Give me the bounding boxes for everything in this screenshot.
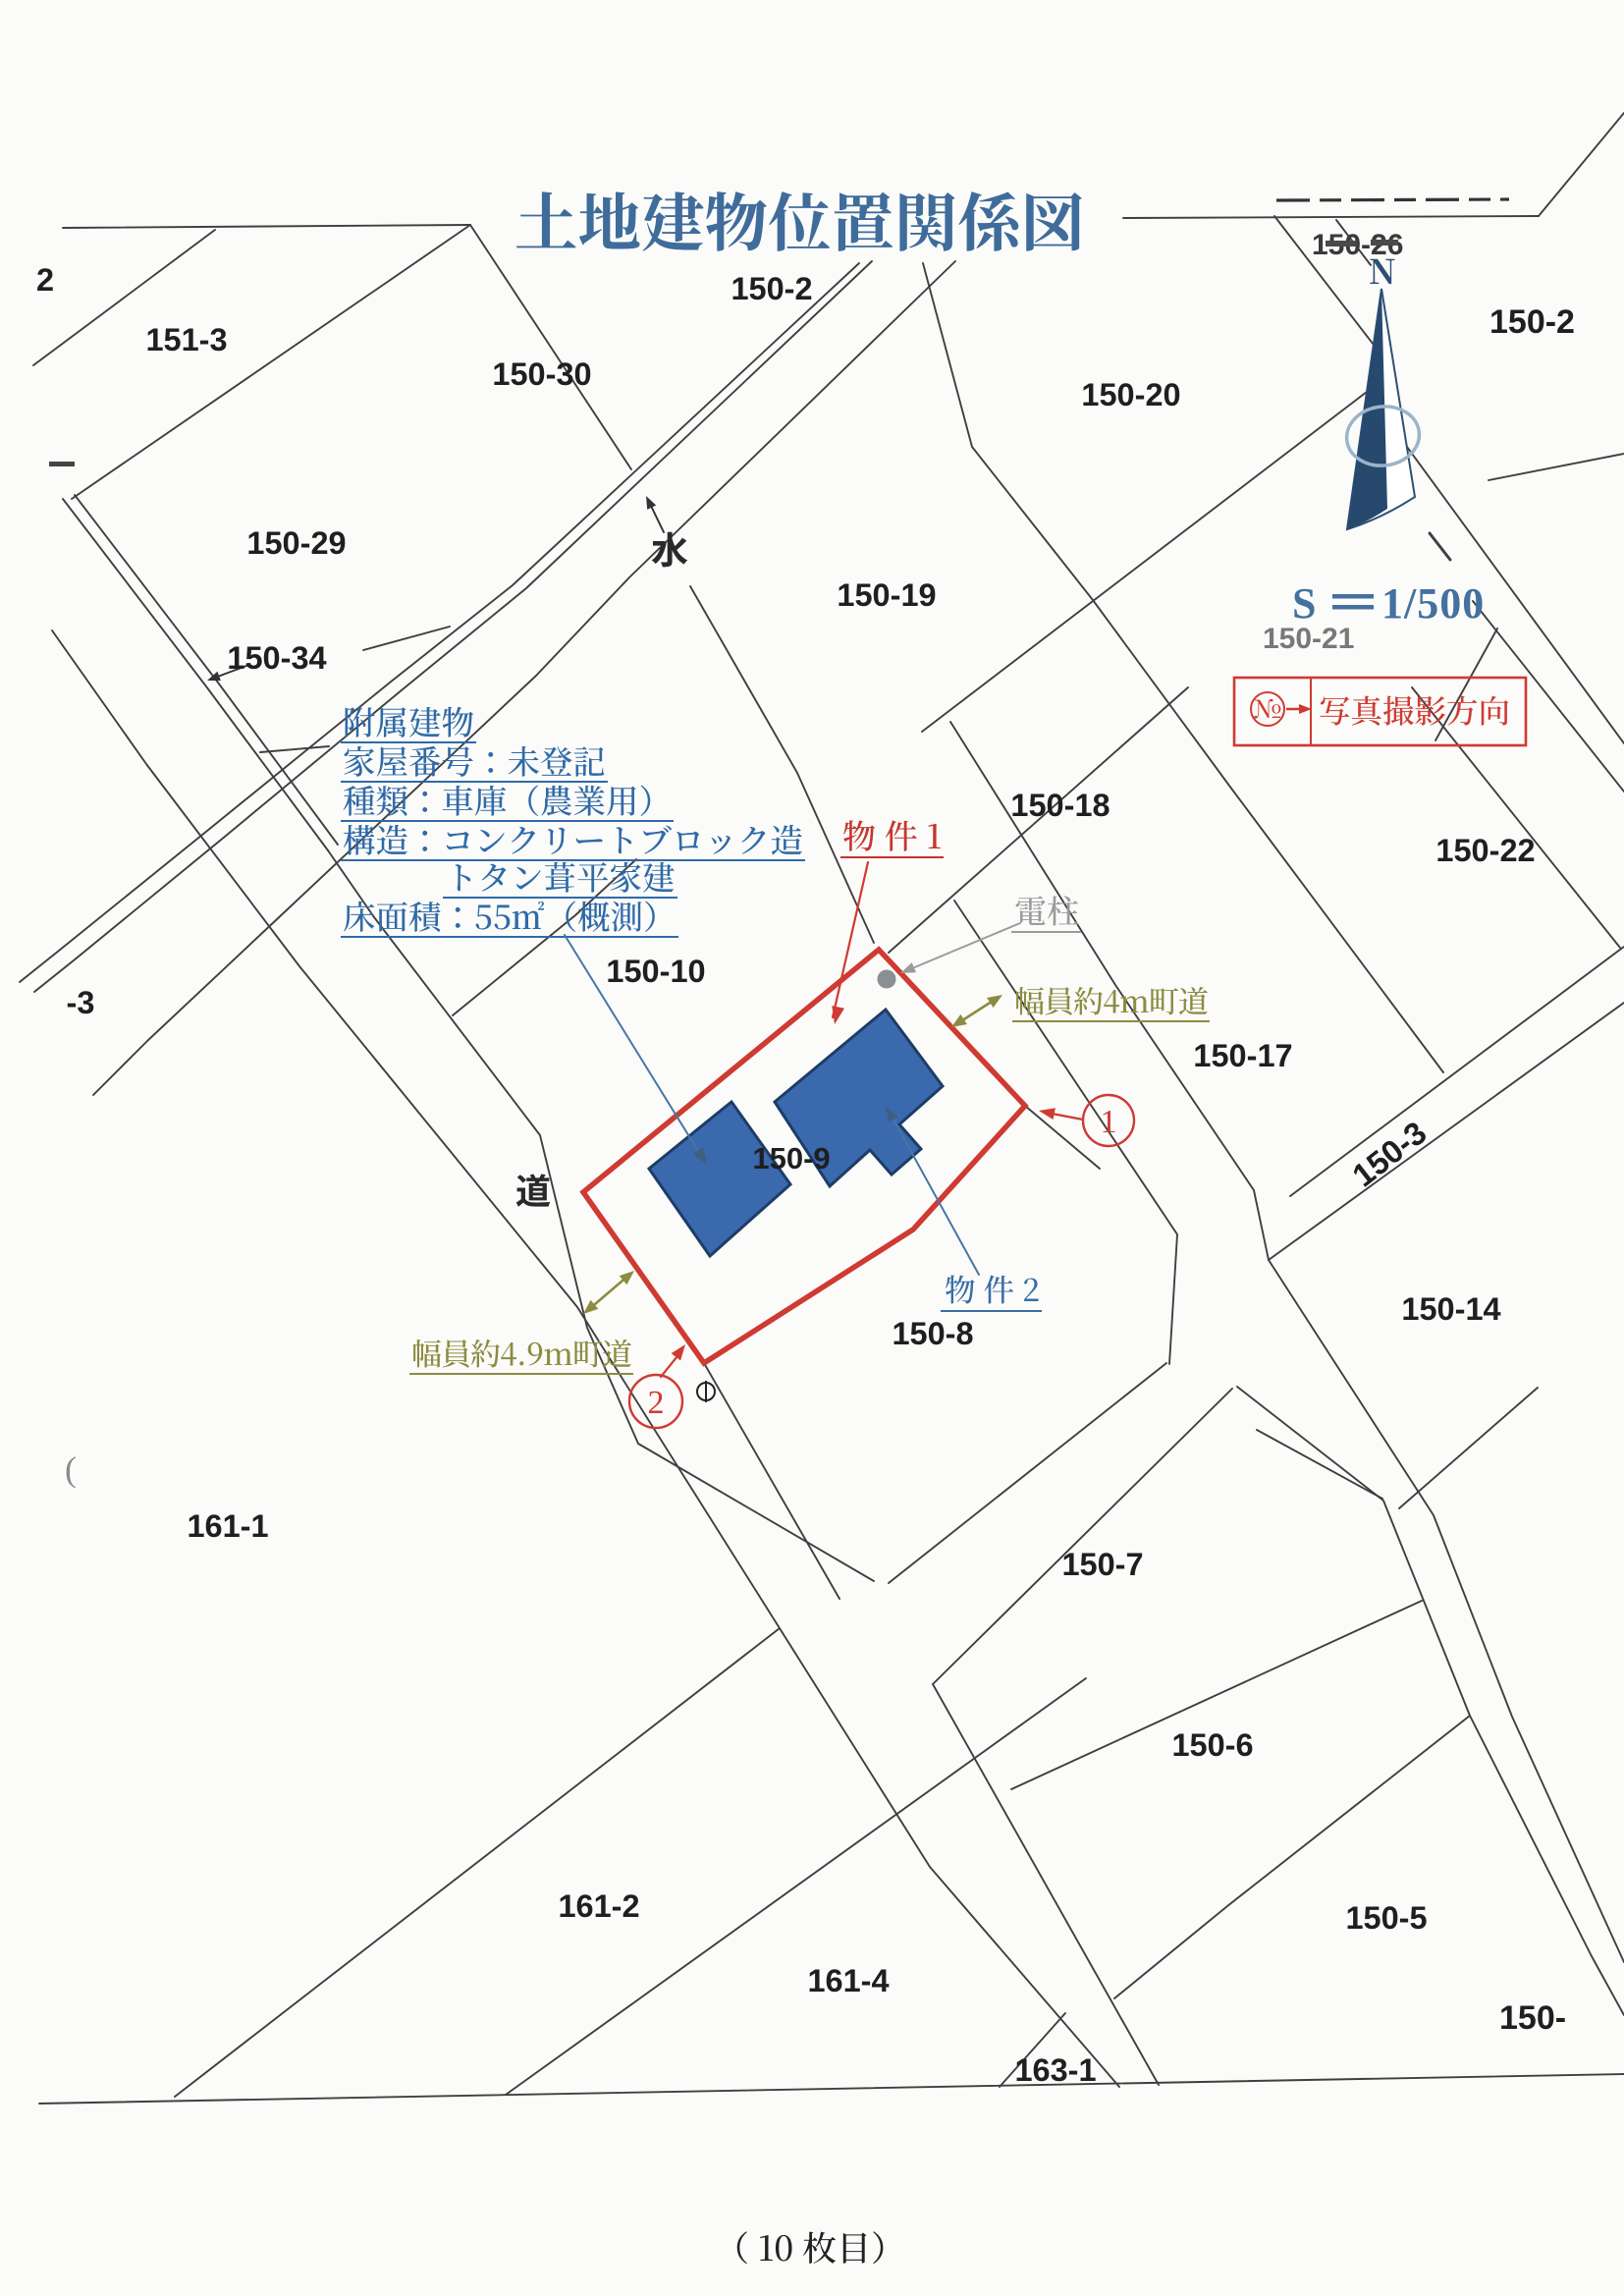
svg-text:S: S xyxy=(1292,579,1316,628)
svg-text:150-20: 150-20 xyxy=(1081,377,1180,412)
svg-text:150-5: 150-5 xyxy=(1345,1900,1427,1936)
svg-text:150-21: 150-21 xyxy=(1263,623,1354,655)
svg-text:150-29: 150-29 xyxy=(246,525,346,561)
svg-text:150-2: 150-2 xyxy=(1489,303,1575,341)
svg-text:(: ( xyxy=(65,1449,77,1489)
svg-text:150-7: 150-7 xyxy=(1061,1547,1143,1582)
svg-text:1/500: 1/500 xyxy=(1381,579,1485,628)
svg-text:161-4: 161-4 xyxy=(807,1963,889,1998)
svg-text:150-22: 150-22 xyxy=(1435,833,1535,868)
svg-text:150-8: 150-8 xyxy=(892,1316,973,1351)
svg-text:150-6: 150-6 xyxy=(1171,1727,1253,1763)
svg-text:150-14: 150-14 xyxy=(1401,1291,1500,1327)
svg-text:150-9: 150-9 xyxy=(752,1141,830,1175)
svg-text:161-1: 161-1 xyxy=(187,1508,268,1544)
svg-text:163-1: 163-1 xyxy=(1014,2052,1096,2088)
svg-text:150-34: 150-34 xyxy=(227,640,326,676)
svg-text:161-2: 161-2 xyxy=(558,1888,639,1924)
svg-text:151-3: 151-3 xyxy=(145,322,227,357)
svg-text:150-18: 150-18 xyxy=(1010,788,1110,823)
svg-text:150-19: 150-19 xyxy=(837,577,936,613)
svg-text:1: 1 xyxy=(1101,1104,1117,1140)
svg-text:150-10: 150-10 xyxy=(606,954,705,989)
svg-text:150-: 150- xyxy=(1499,1999,1566,2037)
svg-text:2: 2 xyxy=(648,1385,665,1421)
svg-text:-3: -3 xyxy=(67,985,95,1020)
svg-text:150-17: 150-17 xyxy=(1193,1038,1292,1073)
svg-text:150-30: 150-30 xyxy=(492,356,591,392)
svg-text:150-2: 150-2 xyxy=(731,271,812,306)
svg-text:2: 2 xyxy=(36,262,54,298)
